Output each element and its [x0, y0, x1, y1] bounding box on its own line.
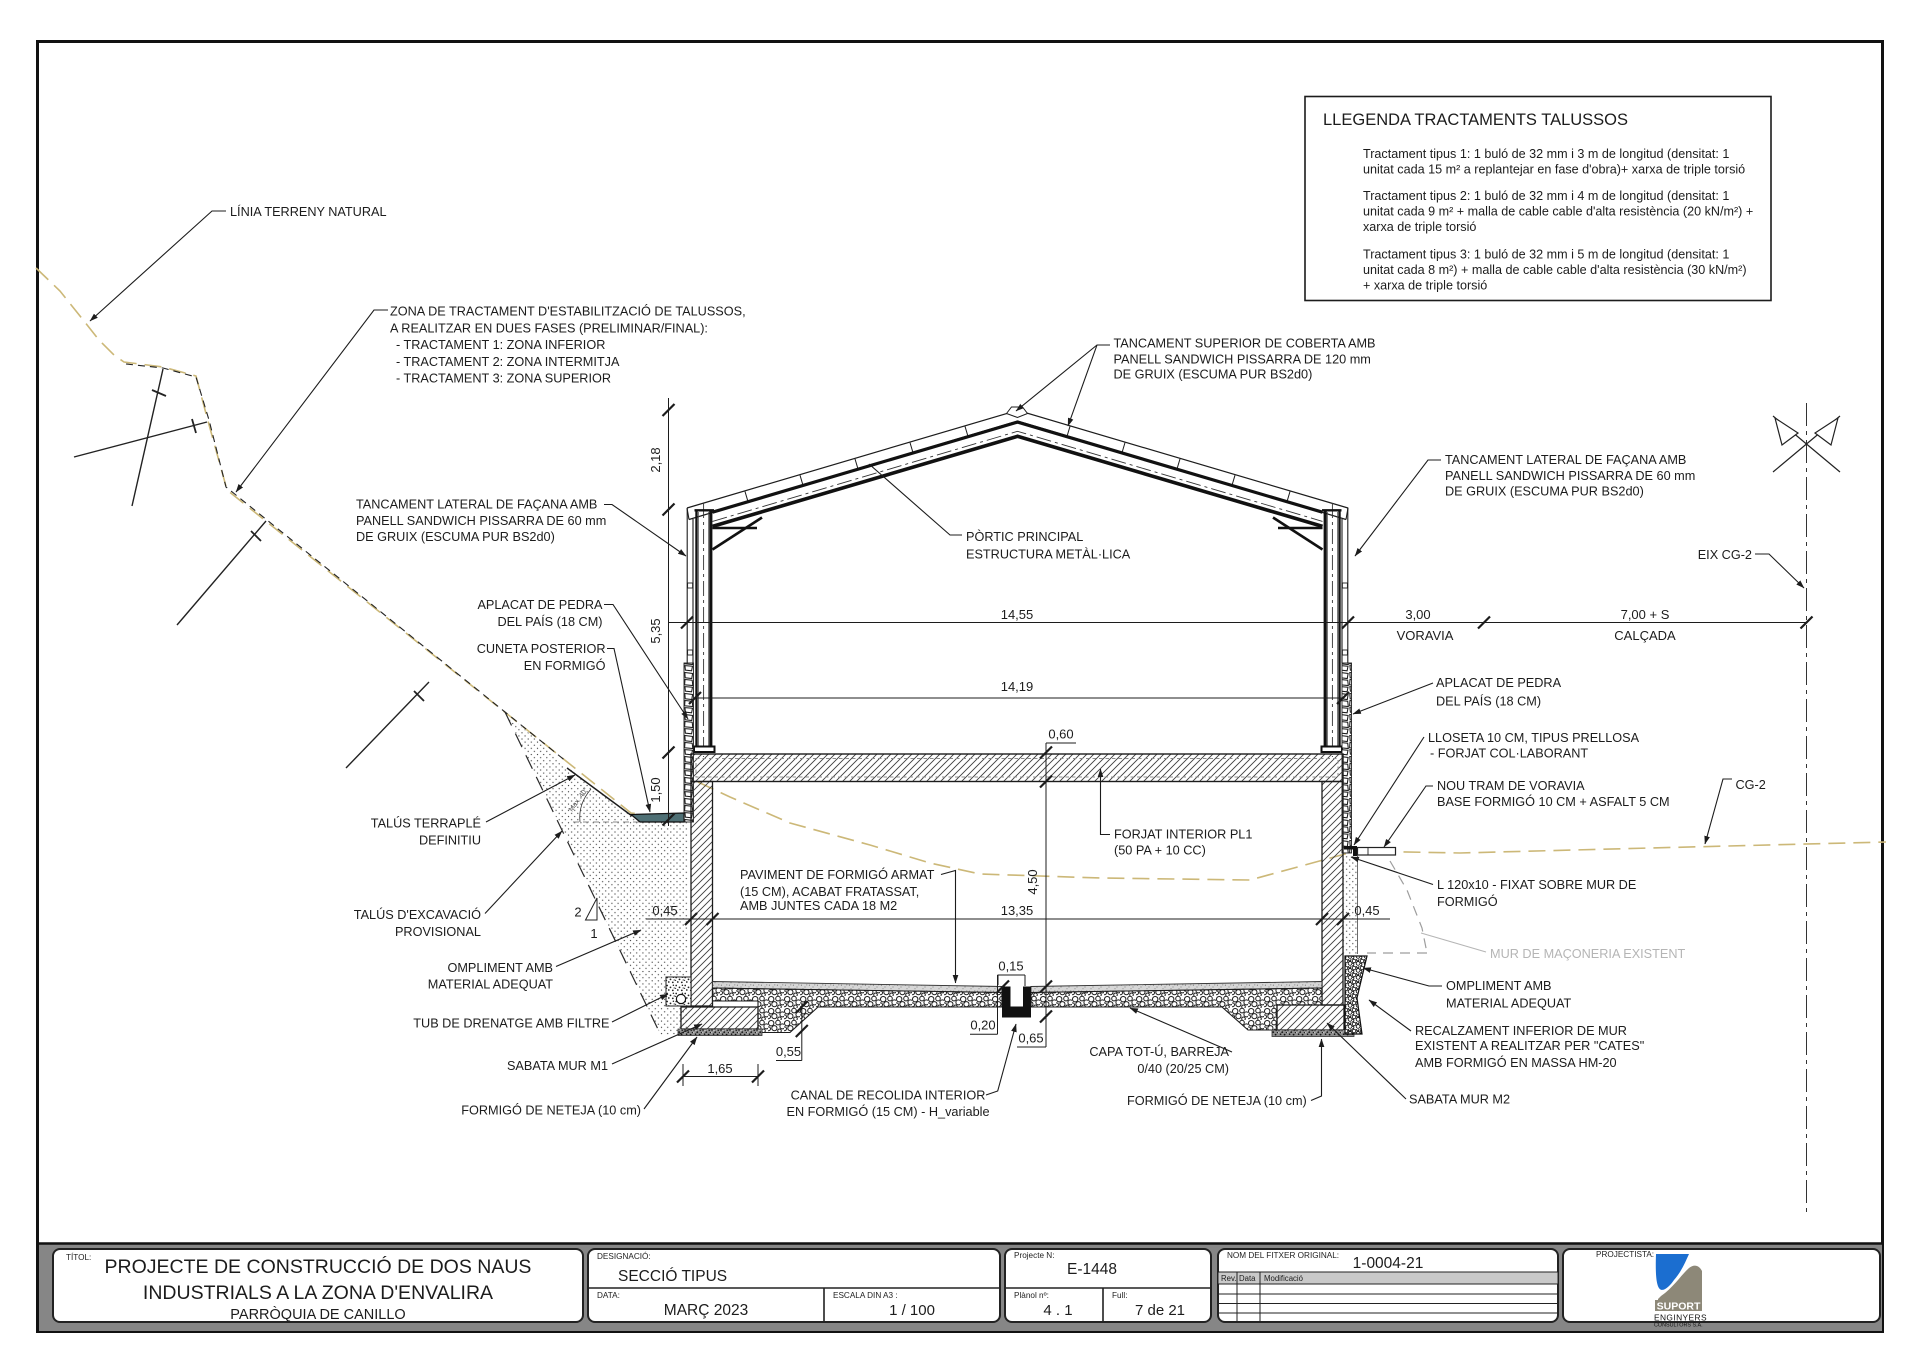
svg-text:FORMIGÓ DE NETEJA (10 cm): FORMIGÓ DE NETEJA (10 cm) — [1127, 1093, 1307, 1108]
svg-text:Tractament tipus 2: 1 buló de: Tractament tipus 2: 1 buló de 32 mm i 4 … — [1363, 189, 1729, 203]
svg-text:3,00: 3,00 — [1405, 607, 1430, 622]
svg-text:14,19: 14,19 — [1001, 679, 1034, 694]
svg-text:0,45: 0,45 — [652, 903, 677, 918]
svg-text:TÍTOL:: TÍTOL: — [66, 1252, 91, 1262]
svg-text:(50 PA + 10 CC): (50 PA + 10 CC) — [1114, 844, 1206, 858]
svg-text:1 / 100: 1 / 100 — [889, 1302, 935, 1319]
svg-text:DATA:: DATA: — [597, 1291, 620, 1300]
svg-text:FORJAT INTERIOR PL1: FORJAT INTERIOR PL1 — [1114, 828, 1252, 842]
svg-text:- TRACTAMENT 2: ZONA INTERMITJ: - TRACTAMENT 2: ZONA INTERMITJA — [396, 355, 620, 369]
svg-text:unitat cada 9 m² + malla de ca: unitat cada 9 m² + malla de cable cable … — [1363, 205, 1753, 219]
svg-text:MUR DE MAÇONERIA EXISTENT: MUR DE MAÇONERIA EXISTENT — [1490, 947, 1686, 961]
svg-text:PÒRTIC PRINCIPAL: PÒRTIC PRINCIPAL — [966, 529, 1083, 544]
svg-text:unitat cada 8 m²) + malla de c: unitat cada 8 m²) + malla de cable cable… — [1363, 263, 1747, 277]
svg-text:PANELL SANDWICH PISSARRA DE 60: PANELL SANDWICH PISSARRA DE 60 mm — [1445, 469, 1695, 483]
svg-text:1,50: 1,50 — [648, 777, 663, 802]
svg-text:xarxa de triple torsió: xarxa de triple torsió — [1363, 220, 1476, 234]
svg-text:PROJECTISTA:: PROJECTISTA: — [1596, 1250, 1654, 1259]
svg-text:EN FORMIGÓ (15 CM) - H_variabl: EN FORMIGÓ (15 CM) - H_variable — [786, 1104, 989, 1119]
svg-text:0,15: 0,15 — [998, 959, 1023, 974]
svg-text:MATERIAL ADEQUAT: MATERIAL ADEQUAT — [428, 978, 553, 992]
svg-text:PAVIMENT DE FORMIGÓ ARMAT: PAVIMENT DE FORMIGÓ ARMAT — [740, 867, 935, 882]
svg-text:AMB JUNTES CADA 18 M2: AMB JUNTES CADA 18 M2 — [740, 899, 897, 913]
svg-text:unitat cada 15 m² a replanteja: unitat cada 15 m² a replantejar en fase … — [1363, 163, 1745, 177]
svg-text:0,65: 0,65 — [1018, 1031, 1043, 1046]
svg-text:FORMIGÓ: FORMIGÓ — [1437, 894, 1498, 909]
svg-text:DE GRUIX (ESCUMA PUR BS2d0): DE GRUIX (ESCUMA PUR BS2d0) — [1114, 368, 1313, 382]
svg-text:Plànol nº:: Plànol nº: — [1014, 1291, 1049, 1300]
svg-text:4 . 1: 4 . 1 — [1043, 1302, 1072, 1319]
svg-text:5,35: 5,35 — [648, 618, 663, 643]
svg-text:INDUSTRIALS A LA ZONA D'ENVALI: INDUSTRIALS A LA ZONA D'ENVALIRA — [143, 1282, 493, 1304]
svg-text:SABATA MUR M1: SABATA MUR M1 — [507, 1059, 608, 1073]
svg-text:NOU TRAM DE VORAVIA: NOU TRAM DE VORAVIA — [1437, 779, 1585, 793]
svg-text:EN FORMIGÓ: EN FORMIGÓ — [524, 658, 606, 673]
svg-text:EIX CG-2: EIX CG-2 — [1698, 548, 1752, 562]
svg-text:DE GRUIX (ESCUMA PUR BS2d0): DE GRUIX (ESCUMA PUR BS2d0) — [356, 530, 555, 544]
svg-text:0,55: 0,55 — [776, 1044, 801, 1059]
svg-text:Tractament tipus 3: 1 buló de: Tractament tipus 3: 1 buló de 32 mm i 5 … — [1363, 248, 1729, 262]
svg-text:LLOSETA 10 CM, TIPUS PRELLOSA: LLOSETA 10 CM, TIPUS PRELLOSA — [1428, 731, 1640, 745]
svg-text:CANAL DE RECOLIDA INTERIOR: CANAL DE RECOLIDA INTERIOR — [791, 1089, 986, 1103]
svg-text:- TRACTAMENT 1: ZONA INFERIOR: - TRACTAMENT 1: ZONA INFERIOR — [396, 338, 605, 352]
svg-text:FORMIGÓ DE NETEJA (10 cm): FORMIGÓ DE NETEJA (10 cm) — [461, 1103, 641, 1118]
svg-text:E-1448: E-1448 — [1067, 1261, 1117, 1278]
svg-text:OMPLIMENT AMB: OMPLIMENT AMB — [447, 961, 553, 975]
svg-text:AMB FORMIGÓ EN MASSA HM-20: AMB FORMIGÓ EN MASSA HM-20 — [1415, 1055, 1617, 1070]
svg-text:PANELL SANDWICH PISSARRA DE 12: PANELL SANDWICH PISSARRA DE 120 mm — [1114, 353, 1371, 367]
svg-text:4,50: 4,50 — [1025, 869, 1040, 894]
svg-text:(15 CM), ACABAT FRATASSAT,: (15 CM), ACABAT FRATASSAT, — [740, 885, 919, 899]
svg-text:EXISTENT A REALITZAR PER "CATE: EXISTENT A REALITZAR PER "CATES" — [1415, 1039, 1644, 1053]
svg-text:0,45: 0,45 — [1354, 903, 1379, 918]
svg-text:Data: Data — [1239, 1274, 1256, 1283]
svg-text:CG-2: CG-2 — [1736, 778, 1766, 792]
svg-text:BASE FORMIGÓ 10 CM + ASFALT 5: BASE FORMIGÓ 10 CM + ASFALT 5 CM — [1437, 794, 1670, 809]
svg-text:LLEGENDA TRACTAMENTS TALUSSOS: LLEGENDA TRACTAMENTS TALUSSOS — [1323, 111, 1628, 129]
svg-text:CONSULTORS S.A.: CONSULTORS S.A. — [1654, 1323, 1703, 1329]
svg-text:CALÇADA: CALÇADA — [1614, 628, 1676, 643]
svg-text:TANCAMENT LATERAL DE FAÇANA AM: TANCAMENT LATERAL DE FAÇANA AMB — [356, 498, 597, 512]
svg-text:APLACAT DE PEDRA: APLACAT DE PEDRA — [477, 598, 603, 612]
svg-text:7,00 + S: 7,00 + S — [1621, 607, 1670, 622]
svg-text:Projecte N:: Projecte N: — [1014, 1251, 1055, 1260]
svg-text:MARÇ 2023: MARÇ 2023 — [664, 1302, 748, 1319]
svg-text:- TRACTAMENT 3: ZONA SUPERIOR: - TRACTAMENT 3: ZONA SUPERIOR — [396, 372, 611, 386]
svg-text:PARRÒQUIA DE CANILLO: PARRÒQUIA DE CANILLO — [230, 1306, 405, 1323]
svg-text:TUB DE DRENATGE AMB FILTRE: TUB DE DRENATGE AMB FILTRE — [413, 1017, 609, 1031]
svg-text:Full:: Full: — [1112, 1291, 1127, 1300]
svg-text:APLACAT DE PEDRA: APLACAT DE PEDRA — [1436, 676, 1562, 690]
svg-text:MATERIAL ADEQUAT: MATERIAL ADEQUAT — [1446, 997, 1571, 1011]
svg-text:TALÚS D'EXCAVACIÓ: TALÚS D'EXCAVACIÓ — [354, 907, 481, 922]
svg-text:ZONA DE TRACTAMENT D'ESTABILIT: ZONA DE TRACTAMENT D'ESTABILITZACIÓ DE T… — [390, 304, 746, 319]
svg-text:CAPA TOT-Ú, BARREJA: CAPA TOT-Ú, BARREJA — [1089, 1044, 1229, 1059]
svg-text:SECCIÓ TIPUS: SECCIÓ TIPUS — [618, 1268, 727, 1285]
svg-text:- FORJAT COL·LABORANT: - FORJAT COL·LABORANT — [1430, 747, 1588, 761]
svg-text:OMPLIMENT AMB: OMPLIMENT AMB — [1446, 979, 1552, 993]
svg-text:A REALITZAR EN DUES FASES (PRE: A REALITZAR EN DUES FASES (PRELIMINAR/FI… — [390, 322, 708, 336]
svg-text:RECALZAMENT INFERIOR DE MUR: RECALZAMENT INFERIOR DE MUR — [1415, 1024, 1627, 1038]
svg-text:Tractament tipus 1: 1 buló de: Tractament tipus 1: 1 buló de 32 mm i 3 … — [1363, 147, 1729, 161]
svg-text:14,55: 14,55 — [1001, 607, 1034, 622]
svg-text:Modificació: Modificació — [1264, 1274, 1304, 1283]
svg-text:ENGINYERS: ENGINYERS — [1654, 1313, 1707, 1323]
svg-text:ESTRUCTURA METÀL·LICA: ESTRUCTURA METÀL·LICA — [966, 547, 1131, 562]
svg-text:PANELL SANDWICH PISSARRA DE 60: PANELL SANDWICH PISSARRA DE 60 mm — [356, 514, 606, 528]
svg-text:0,60: 0,60 — [1048, 727, 1073, 742]
svg-text:2: 2 — [574, 905, 581, 920]
svg-text:SABATA MUR M2: SABATA MUR M2 — [1409, 1093, 1510, 1107]
svg-text:DE GRUIX (ESCUMA PUR BS2d0): DE GRUIX (ESCUMA PUR BS2d0) — [1445, 485, 1644, 499]
svg-text:DEFINITIU: DEFINITIU — [419, 834, 481, 848]
svg-text:1-0004-21: 1-0004-21 — [1353, 1255, 1424, 1272]
svg-text:PROJECTE DE CONSTRUCCIÓ DE DOS: PROJECTE DE CONSTRUCCIÓ DE DOS NAUS — [105, 1255, 532, 1278]
svg-text:PROVISIONAL: PROVISIONAL — [395, 925, 481, 939]
svg-text:2,18: 2,18 — [648, 447, 663, 472]
svg-text:DEL PAÍS (18 CM): DEL PAÍS (18 CM) — [1436, 694, 1541, 709]
svg-text:Rev.: Rev. — [1221, 1274, 1236, 1283]
svg-text:DESIGNACIÓ:: DESIGNACIÓ: — [597, 1251, 651, 1261]
svg-text:L 120x10 - FIXAT SOBRE MUR DE: L 120x10 - FIXAT SOBRE MUR DE — [1437, 878, 1636, 892]
svg-text:SUPORT: SUPORT — [1657, 1301, 1701, 1313]
svg-text:0/40 (20/25 CM): 0/40 (20/25 CM) — [1137, 1062, 1229, 1076]
svg-text:VORAVIA: VORAVIA — [1397, 628, 1454, 643]
svg-text:TANCAMENT LATERAL DE FAÇANA AM: TANCAMENT LATERAL DE FAÇANA AMB — [1445, 453, 1686, 467]
svg-text:+ xarxa de triple torsió: + xarxa de triple torsió — [1363, 279, 1487, 293]
svg-text:ESCALA DIN A3 :: ESCALA DIN A3 : — [833, 1291, 898, 1300]
svg-text:0,20: 0,20 — [970, 1018, 995, 1033]
svg-text:CUNETA POSTERIOR: CUNETA POSTERIOR — [477, 642, 606, 656]
svg-text:DEL PAÍS (18 CM): DEL PAÍS (18 CM) — [497, 614, 602, 629]
svg-text:13,35: 13,35 — [1001, 903, 1034, 918]
svg-text:LÍNIA TERRENY NATURAL: LÍNIA TERRENY NATURAL — [230, 204, 387, 219]
svg-text:TANCAMENT SUPERIOR DE COBERTA: TANCAMENT SUPERIOR DE COBERTA AMB — [1114, 337, 1376, 351]
svg-text:TALÚS TERRAPLÉ: TALÚS TERRAPLÉ — [371, 816, 481, 831]
svg-text:7 de 21: 7 de 21 — [1135, 1302, 1185, 1319]
svg-text:NOM DEL FITXER ORIGINAL:: NOM DEL FITXER ORIGINAL: — [1227, 1251, 1339, 1260]
svg-text:1,65: 1,65 — [707, 1061, 732, 1076]
svg-text:1: 1 — [590, 926, 597, 941]
